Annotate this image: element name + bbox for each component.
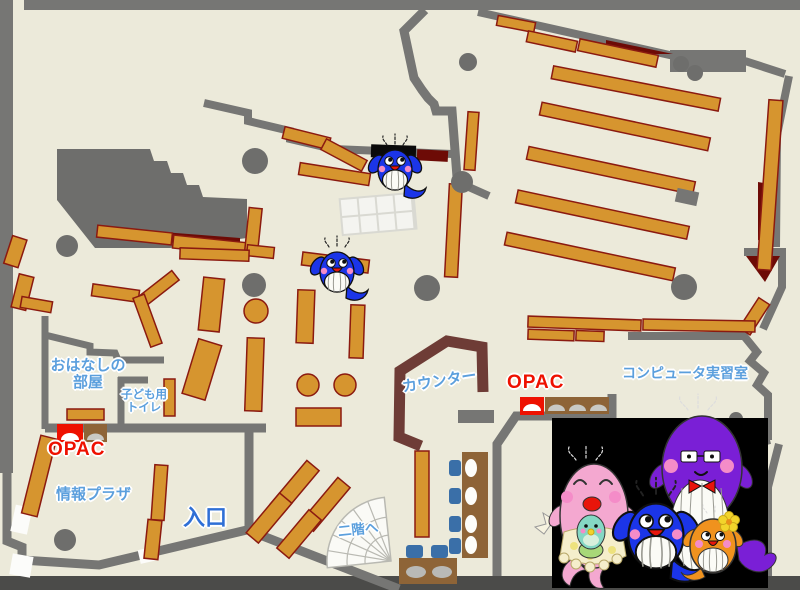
pillar (459, 53, 477, 71)
bookshelf (643, 319, 755, 332)
pillar (54, 529, 76, 551)
label-info-plaza: 情報プラザ (56, 487, 131, 504)
bookshelf (296, 290, 315, 344)
outer-wall-left (0, 0, 13, 473)
counter-back-desk (458, 410, 494, 423)
opac-terminal-right (520, 397, 609, 415)
pillar (673, 56, 689, 72)
pillar (671, 274, 697, 300)
doorway (9, 553, 33, 577)
label-entrance: 入口 (183, 506, 227, 530)
bookshelf (246, 245, 274, 259)
bookshelf (415, 451, 429, 537)
grid-study-table (339, 192, 418, 236)
pillar (414, 275, 440, 301)
bookshelf (576, 331, 604, 342)
label-opac-right: OPAC (507, 373, 564, 394)
bookshelf (245, 338, 265, 412)
round-table (297, 374, 319, 396)
bookshelf (180, 248, 249, 261)
round-table (244, 299, 268, 323)
label-opac-left: OPAC (48, 440, 105, 461)
bookshelf (144, 519, 162, 559)
round-table (334, 374, 356, 396)
label-kids-toilet: 子ども用 トイレ (118, 389, 170, 414)
library-floor-map: おはなしの 部屋 子ども用 トイレ OPAC 情報プラザ 入口 二階へ カウンタ… (0, 0, 800, 590)
bookshelf (296, 408, 341, 426)
pillar (56, 235, 78, 257)
bookshelf (67, 409, 104, 420)
teal-baby-whale (577, 515, 605, 558)
bookshelf (198, 277, 224, 332)
pillar (687, 65, 703, 81)
dark-red-area (417, 149, 449, 162)
bookshelf (349, 305, 365, 358)
label-computer-room: コンピュータ実習室 (622, 366, 748, 381)
pillar (242, 148, 268, 174)
bookshelf (151, 465, 168, 521)
pillar (451, 171, 473, 193)
bookshelf (528, 329, 574, 341)
outer-wall-top (24, 0, 800, 10)
pillar (242, 273, 266, 297)
label-storytelling-room: おはなしの 部屋 (48, 358, 128, 391)
